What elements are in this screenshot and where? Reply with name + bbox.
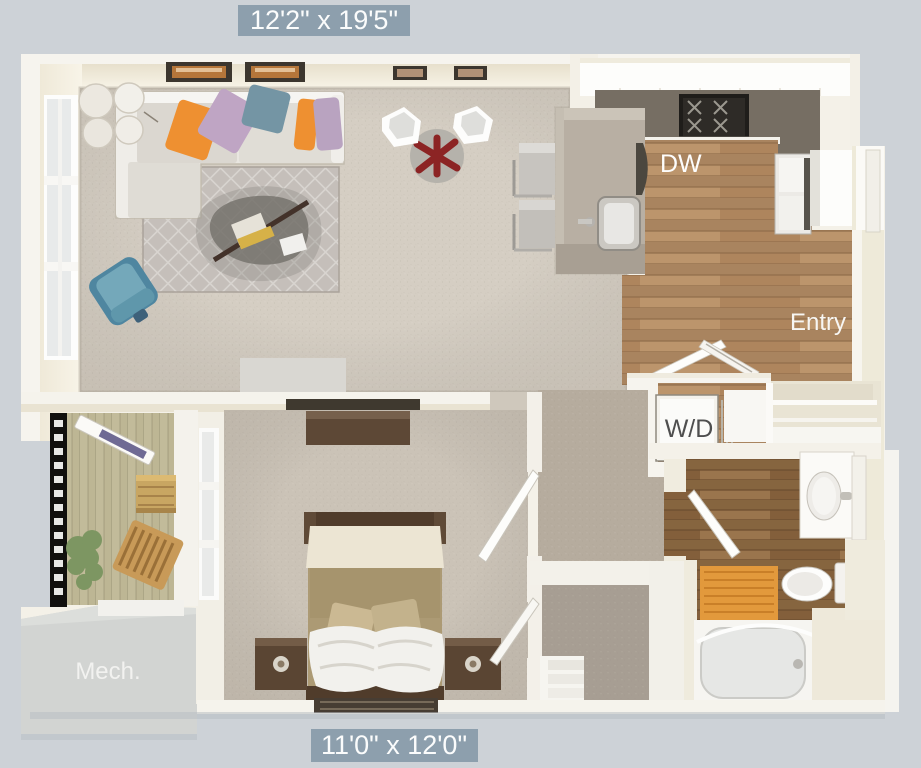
svg-text:Entry: Entry [790, 309, 846, 336]
svg-text:11'0" x 12'0": 11'0" x 12'0" [321, 730, 467, 760]
svg-text:W/D: W/D [665, 415, 714, 443]
svg-text:Mech.: Mech. [75, 658, 140, 685]
svg-text:DW: DW [660, 150, 702, 178]
svg-text:12'2" x 19'5": 12'2" x 19'5" [250, 5, 398, 35]
